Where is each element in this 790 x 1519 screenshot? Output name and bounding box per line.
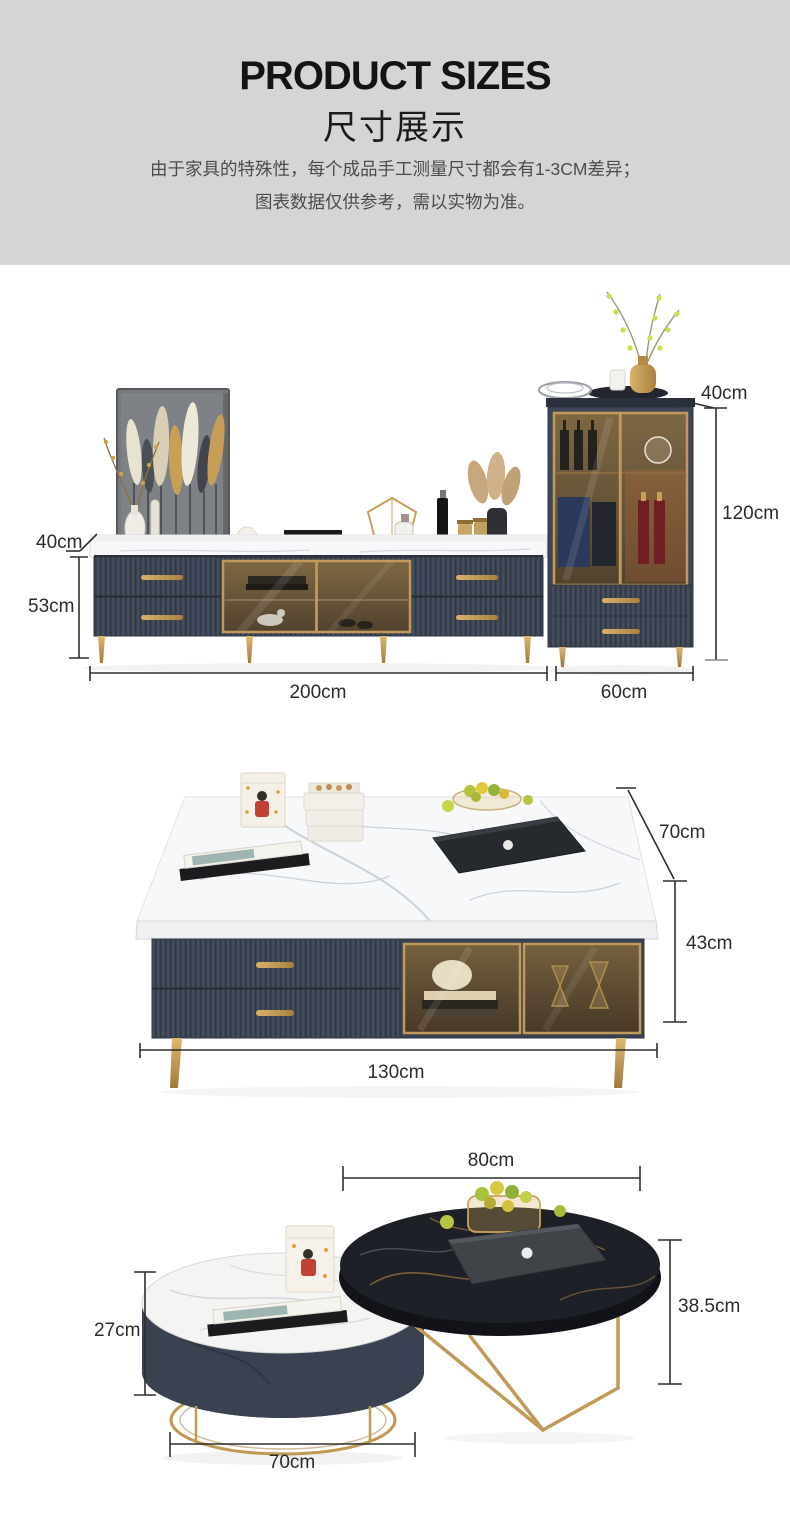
dim-label-large-height: 38.5cm — [678, 1296, 740, 1318]
dim-label-small-diameter: 70cm — [269, 1452, 315, 1474]
tv-stand-scene — [66, 292, 728, 681]
dim-label-stand-height: 53cm — [28, 596, 74, 618]
dim-label-small-height: 27cm — [94, 1320, 140, 1342]
page: PRODUCT SIZES 尺寸展示 由于家具的特殊性，每个成品手工测量尺寸都会… — [0, 0, 790, 1519]
dim-label-cabinet-width: 60cm — [601, 682, 647, 704]
dim-label-stand-width: 200cm — [289, 682, 346, 704]
round-tables-scene — [134, 1166, 682, 1465]
dim-label-cabinet-height: 120cm — [722, 503, 779, 525]
dim-label-coffee-depth: 70cm — [659, 822, 705, 844]
dim-label-coffee-height: 43cm — [686, 933, 732, 955]
dim-label-large-diameter: 80cm — [468, 1150, 514, 1172]
dim-label-coffee-width: 130cm — [367, 1062, 424, 1084]
dim-label-cabinet-depth: 40cm — [701, 383, 747, 405]
coffee-table-scene — [136, 773, 687, 1098]
wine-cabinet — [539, 292, 695, 667]
furniture-illustrations — [0, 0, 790, 1519]
tv-stand — [90, 535, 547, 663]
dim-label-stand-depth: 40cm — [36, 532, 82, 554]
